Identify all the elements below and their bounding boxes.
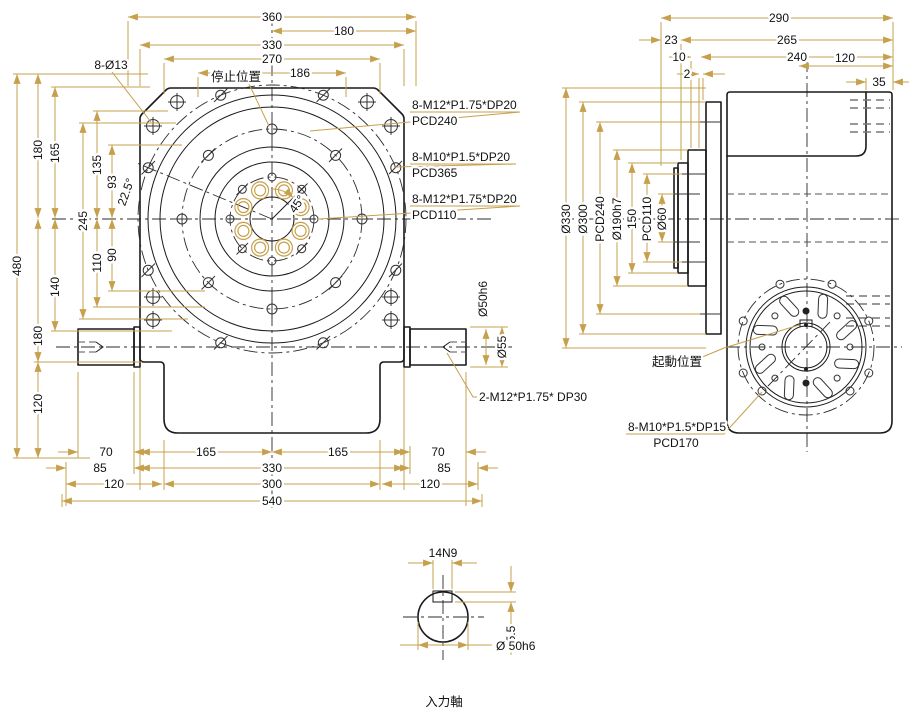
dim-150: 150 bbox=[625, 209, 639, 229]
side-body-step bbox=[727, 92, 866, 156]
flange-300 bbox=[688, 150, 706, 286]
dim-540: 540 bbox=[262, 494, 282, 508]
dim-330-top: 330 bbox=[262, 38, 282, 52]
dim-45deg: 45° bbox=[286, 192, 308, 215]
dim-120-bl: 120 bbox=[104, 477, 124, 491]
dim-180-left-lower: 180 bbox=[31, 326, 45, 346]
side-view: 290 23 265 10 240 2 120 35 Ø330 Ø300 PCD… bbox=[559, 11, 909, 452]
holes-note: 8-Ø13 bbox=[94, 58, 128, 72]
dim-245: 245 bbox=[76, 211, 90, 231]
dim-85-right: 85 bbox=[437, 461, 451, 475]
dim-70-left: 70 bbox=[99, 445, 113, 459]
note2-line2: PCD365 bbox=[412, 166, 458, 180]
dim-35: 35 bbox=[872, 75, 886, 89]
dim-186: 186 bbox=[290, 66, 310, 80]
dim-165-left: 165 bbox=[48, 143, 62, 163]
stop-position-leader bbox=[249, 84, 269, 126]
dim-shaft-50h6: Ø50h6 bbox=[476, 281, 490, 317]
dim-330-bottom: 330 bbox=[262, 461, 282, 475]
dim-110: 110 bbox=[90, 253, 104, 272]
dim-dia300: Ø300 bbox=[576, 204, 590, 234]
dim-290: 290 bbox=[769, 11, 789, 25]
detail-input-shaft: 14N9 5.5 Ø 50h6 入力軸 bbox=[400, 546, 536, 709]
dim-120-br: 120 bbox=[420, 477, 440, 491]
dim-270: 270 bbox=[262, 52, 282, 66]
technical-drawing-canvas: 360 180 330 270 186 停止位置 8-Ø13 480 180 1… bbox=[0, 0, 915, 716]
side-tap-note-line1: 8-M10*P1.5*DP15 bbox=[628, 420, 726, 434]
dim-120-side: 120 bbox=[835, 51, 855, 65]
note3-line2: PCD110 bbox=[412, 208, 457, 222]
dim-shaft-55: Ø55 bbox=[495, 335, 509, 358]
dim-2: 2 bbox=[684, 67, 691, 81]
dim-dia60: Ø60 bbox=[655, 207, 669, 230]
dim-dia190h7: Ø190h7 bbox=[610, 197, 624, 240]
dim-key-width: 14N9 bbox=[429, 546, 458, 560]
dim-10: 10 bbox=[672, 50, 686, 64]
note1-line1: 8-M12*P1.75*DP20 bbox=[412, 98, 517, 112]
side-body-outline bbox=[727, 92, 892, 433]
dim-165-a: 165 bbox=[196, 445, 216, 459]
detail-title: 入力軸 bbox=[425, 694, 463, 709]
dim-240: 240 bbox=[787, 50, 807, 64]
front-view bbox=[52, 12, 512, 508]
dim-23: 23 bbox=[664, 33, 678, 47]
note2-line1: 8-M10*P1.5*DP20 bbox=[412, 150, 510, 164]
dim-85-left: 85 bbox=[93, 461, 107, 475]
holes-note-leader bbox=[112, 72, 151, 122]
flange-330 bbox=[706, 102, 721, 334]
dim-90: 90 bbox=[105, 248, 119, 262]
side-tap-note-line2: PCD170 bbox=[653, 436, 699, 450]
dim-pcd240: PCD240 bbox=[593, 196, 607, 242]
dim-180-top: 180 bbox=[334, 24, 354, 38]
flange-pilot bbox=[674, 168, 678, 268]
shaft-tap-leader bbox=[447, 353, 477, 397]
start-position-leader bbox=[700, 325, 799, 358]
dim-480: 480 bbox=[10, 256, 24, 276]
start-position-label: 起動位置 bbox=[652, 354, 702, 369]
stop-position-label: 停止位置 bbox=[211, 69, 261, 84]
dim-140: 140 bbox=[48, 277, 62, 297]
note3-line1: 8-M12*P1.75*DP20 bbox=[412, 192, 517, 206]
dim-70-right: 70 bbox=[431, 445, 445, 459]
dim-120-left: 120 bbox=[31, 394, 45, 414]
note1-line2: PCD240 bbox=[412, 114, 458, 128]
dim-93: 93 bbox=[105, 175, 119, 189]
dim-165-b: 165 bbox=[328, 445, 348, 459]
flange-190h7 bbox=[678, 163, 688, 273]
dim-265: 265 bbox=[777, 33, 797, 47]
dim-135: 135 bbox=[90, 155, 104, 175]
dim-dia330: Ø330 bbox=[559, 204, 573, 234]
dim-300: 300 bbox=[262, 477, 282, 491]
dim-pcd110: PCD110 bbox=[640, 196, 654, 241]
cad-drawing-page: 360 180 330 270 186 停止位置 8-Ø13 480 180 1… bbox=[0, 0, 915, 716]
shaft-tap-note: 2-M12*P1.75* DP30 bbox=[479, 390, 587, 404]
dim-360: 360 bbox=[262, 10, 282, 24]
dim-detail-dia: Ø 50h6 bbox=[496, 639, 536, 653]
dim-180-left-upper: 180 bbox=[31, 140, 45, 160]
